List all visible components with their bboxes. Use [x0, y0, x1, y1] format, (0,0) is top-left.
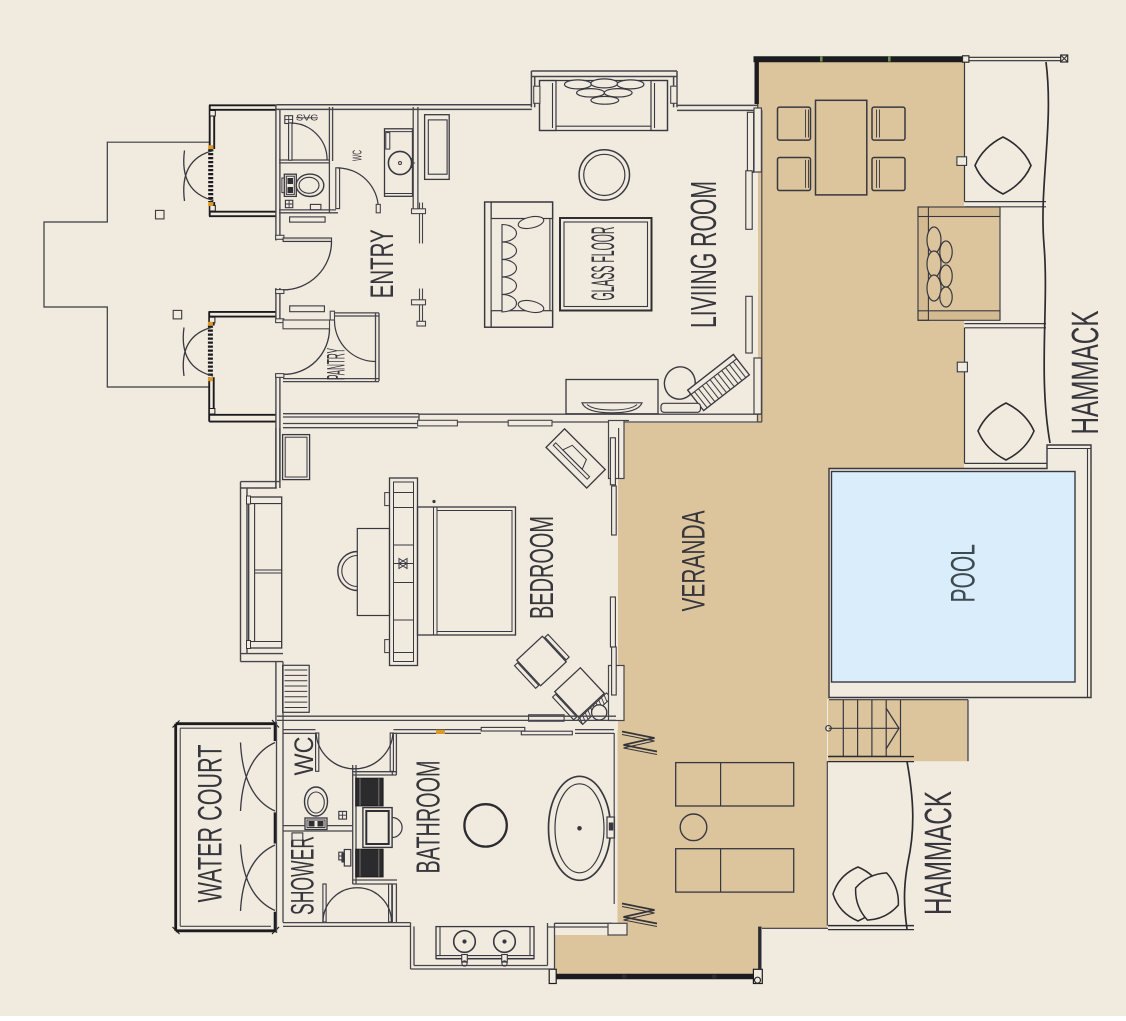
svg-text:POOL: POOL	[945, 544, 983, 603]
svg-text:BATHROOM: BATHROOM	[410, 761, 447, 874]
svg-text:PANTRY: PANTRY	[323, 348, 351, 380]
svg-text:SVC: SVC	[296, 113, 318, 123]
svg-text:ENTRY: ENTRY	[364, 229, 400, 298]
svg-text:WATER COURT: WATER COURT	[192, 745, 230, 903]
svg-text:VERANDA: VERANDA	[676, 510, 712, 611]
svg-text:LIVIING ROOM: LIVIING ROOM	[683, 181, 724, 328]
svg-text:WC: WC	[351, 150, 365, 161]
svg-text:GLASS FLOOR: GLASS FLOOR	[585, 227, 621, 301]
svg-text:SHOWER: SHOWER	[285, 836, 321, 915]
svg-text:WC: WC	[289, 737, 319, 776]
svg-text:HAMMACK: HAMMACK	[1065, 311, 1107, 435]
svg-text:BEDROOM: BEDROOM	[523, 516, 560, 619]
svg-text:HAMMACK: HAMMACK	[918, 791, 960, 915]
